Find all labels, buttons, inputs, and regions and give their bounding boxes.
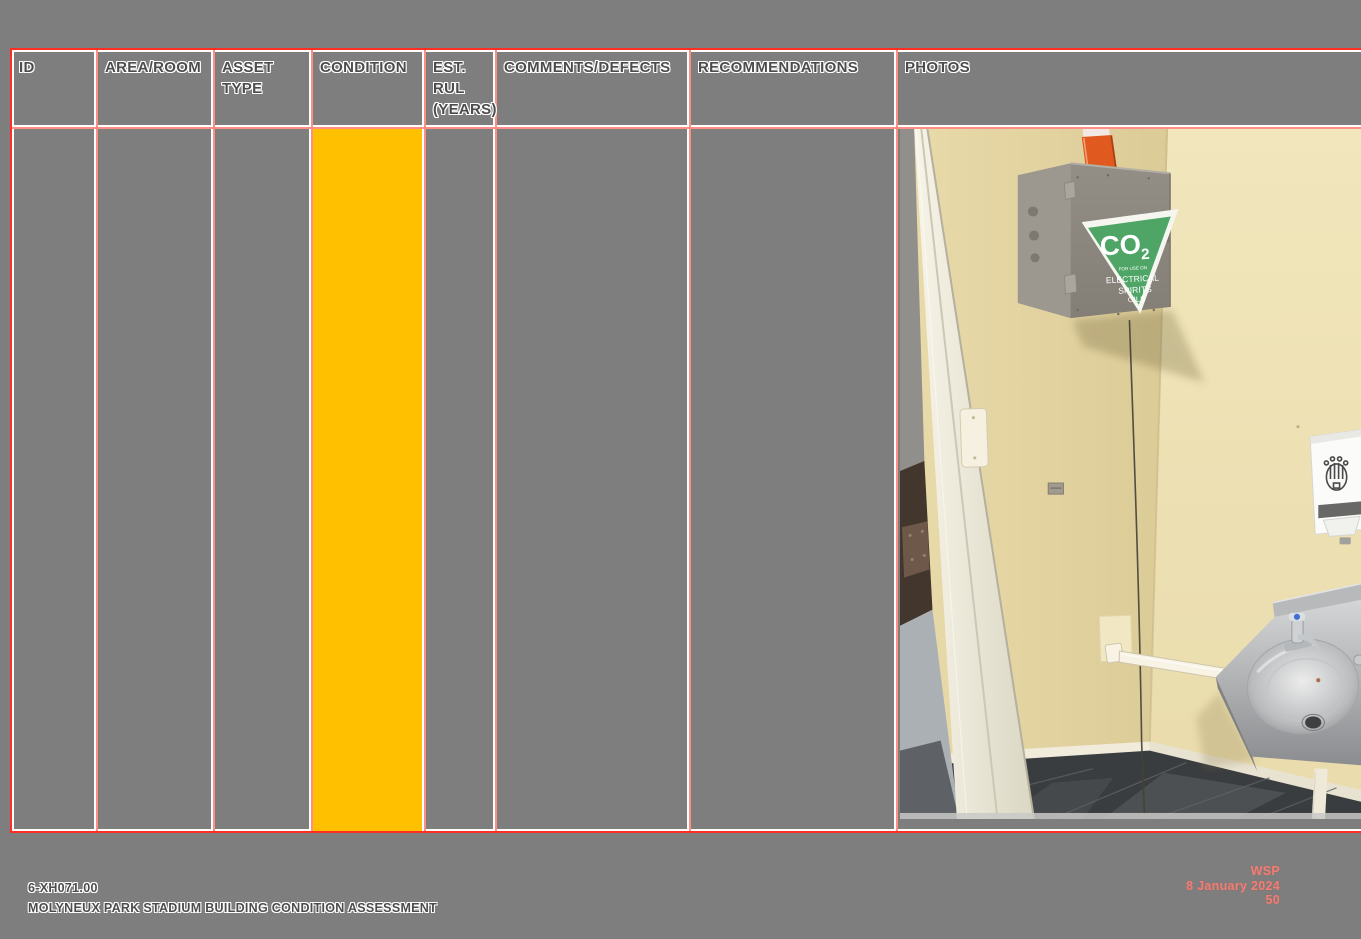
co2-sign-line4: OILS [1128, 294, 1146, 304]
cell-recommendations [691, 129, 898, 831]
condition-table: ID AREA/ROOM ASSET TYPE CONDITION EST. R… [10, 48, 1361, 833]
footer-right: WSP 8 January 2024 50 [1186, 864, 1280, 908]
header-cell-photos: PHOTOS [898, 50, 1361, 127]
table-header-row: ID AREA/ROOM ASSET TYPE CONDITION EST. R… [12, 50, 1361, 129]
cell-asset-type [215, 129, 313, 831]
footer-page-number: 50 [1186, 893, 1280, 908]
cell-condition-rating [313, 129, 426, 831]
cell-area-room [98, 129, 215, 831]
co2-sign-sub-text: 2 [1141, 246, 1150, 263]
header-cell-condition: CONDITION [313, 50, 426, 127]
table-body-row: CO 2 FOR USE ON ELECTRICAL SPIRITS OILS [12, 129, 1361, 831]
cell-photos: CO 2 FOR USE ON ELECTRICAL SPIRITS OILS [898, 129, 1361, 831]
wall-fitting [1048, 483, 1063, 494]
footer-left: 6-XH071.00 MOLYNEUX PARK STADIUM BUILDIN… [28, 878, 437, 918]
footer-doc-number: 6-XH071.00 [28, 878, 437, 898]
blank-wall-plate [960, 408, 988, 467]
footer-date: 8 January 2024 [1186, 879, 1280, 894]
footer-doc-title: MOLYNEUX PARK STADIUM BUILDING CONDITION… [28, 898, 437, 918]
header-cell-asset-type: ASSET TYPE [215, 50, 313, 127]
co2-sign-main-text: CO [1099, 228, 1142, 261]
report-page: ID AREA/ROOM ASSET TYPE CONDITION EST. R… [0, 0, 1361, 939]
cell-est-rul-years [426, 129, 497, 831]
header-cell-recommendations: RECOMMENDATIONS [691, 50, 898, 127]
site-photo: CO 2 FOR USE ON ELECTRICAL SPIRITS OILS [900, 129, 1361, 819]
header-cell-area-room: AREA/ROOM [98, 50, 215, 127]
header-cell-est-rul-years: EST. RUL (YEARS) [426, 50, 497, 127]
cell-id [12, 129, 98, 831]
header-cell-id: ID [12, 50, 98, 127]
header-cell-comments-defects: COMMENTS/DEFECTS [497, 50, 691, 127]
soap-dispenser [1310, 429, 1361, 545]
cell-comments-defects [497, 129, 691, 831]
bathroom-corner-photo: CO 2 FOR USE ON ELECTRICAL SPIRITS OILS [900, 129, 1361, 819]
footer-org: WSP [1186, 864, 1280, 879]
